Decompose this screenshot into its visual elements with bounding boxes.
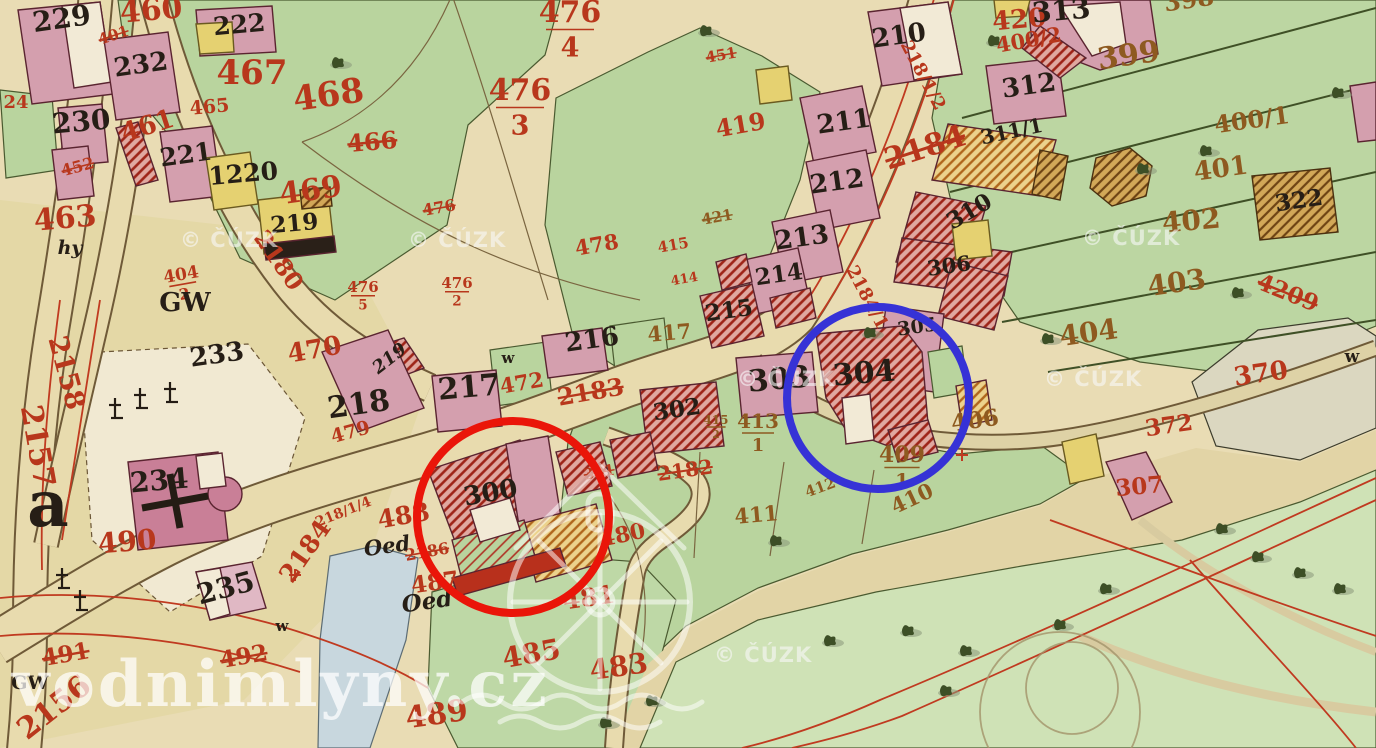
svg-text:304: 304 (831, 353, 896, 393)
svg-text:3: 3 (511, 111, 530, 142)
svg-text:2: 2 (712, 428, 720, 441)
svg-text:2: 2 (452, 293, 461, 309)
svg-text:1220: 1220 (207, 156, 279, 191)
site-watermark: vodnimlyny.cz (10, 647, 550, 722)
parcel-label: 411 (733, 500, 779, 529)
parcel-label: 307 (1114, 471, 1164, 502)
svg-text:313: 313 (1031, 0, 1092, 30)
svg-text:460: 460 (118, 0, 183, 31)
parcel-label: 467 (217, 53, 288, 93)
cuzk-watermark: © ČÚZK (1044, 366, 1142, 391)
cuzk-watermark: © ČÚZK (1082, 225, 1180, 250)
parcel-label: 1220 (207, 156, 279, 191)
svg-text:463: 463 (32, 198, 97, 238)
svg-text:w: w (275, 617, 290, 635)
svg-text:490: 490 (97, 523, 158, 561)
svg-text:1: 1 (752, 435, 765, 456)
parcel-label: 24 (3, 92, 28, 113)
svg-text:409: 409 (879, 442, 925, 468)
parcel-label: 234 (129, 462, 190, 500)
parcel-label: 466 (346, 125, 398, 158)
parcel-label: GW (159, 288, 211, 318)
parcel-label: 490 (97, 523, 158, 561)
svg-text:w: w (1344, 347, 1360, 367)
parcel-label: 217 (436, 367, 501, 407)
parcel-label: 417 (646, 318, 692, 347)
parcel-label: w (1344, 347, 1360, 367)
cuzk-watermark: © ČÚZK (714, 642, 812, 667)
svg-text:w: w (501, 349, 516, 367)
parcel-label: hy (58, 237, 85, 259)
svg-text:230: 230 (51, 103, 112, 141)
svg-text:222: 222 (212, 8, 267, 41)
svg-text:a: a (27, 467, 68, 542)
svg-text:217: 217 (436, 367, 501, 407)
svg-text:476: 476 (539, 0, 602, 30)
svg-text:476: 476 (441, 274, 472, 292)
svg-text:hy: hy (58, 237, 85, 259)
parcel-label: 463 (32, 198, 97, 238)
svg-text:476: 476 (347, 278, 378, 296)
svg-text:417: 417 (646, 318, 692, 347)
cadastral-map-screenshot: 4604014674684654664614524634692447644763… (0, 0, 1376, 748)
svg-text:476: 476 (489, 73, 552, 108)
svg-text:413: 413 (737, 409, 779, 433)
svg-text:5: 5 (358, 297, 367, 313)
svg-text:307: 307 (1114, 471, 1164, 502)
parcel-label: w (501, 349, 516, 367)
parcel-label: 460 (118, 0, 183, 31)
parcel-label: 465 (189, 94, 230, 119)
svg-text:4: 4 (561, 33, 580, 64)
svg-text:234: 234 (129, 462, 190, 500)
cadastral-map-canvas: 4604014674684654664614524634692447644763… (0, 0, 1376, 748)
parcel-label: 230 (51, 103, 112, 141)
parcel-label: 304 (831, 353, 896, 393)
svg-text:467: 467 (217, 53, 288, 93)
parcel-label: a (27, 467, 68, 542)
cuzk-watermark: © ČÚZK (180, 227, 278, 252)
parcel-label: w (275, 617, 290, 635)
cuzk-watermark: © ČÚZK (408, 227, 506, 252)
svg-text:415: 415 (703, 413, 728, 427)
svg-text:24: 24 (3, 92, 28, 113)
svg-text:411: 411 (733, 500, 779, 529)
parcel-label: 222 (212, 8, 267, 41)
svg-text:466: 466 (346, 125, 398, 158)
svg-text:GW: GW (159, 288, 211, 318)
svg-text:465: 465 (189, 94, 230, 119)
parcel-label: 313 (1031, 0, 1092, 30)
